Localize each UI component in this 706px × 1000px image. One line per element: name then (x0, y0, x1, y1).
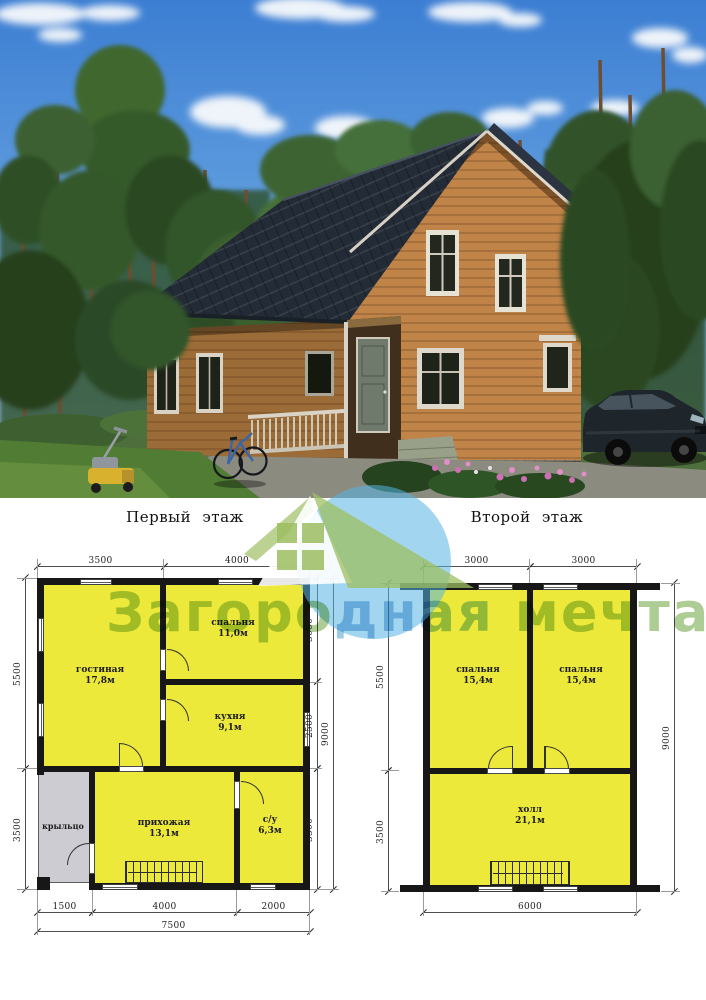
window (218, 579, 253, 585)
dimension: 3000 (317, 578, 318, 682)
window (250, 884, 276, 890)
room-name: гостиная (55, 665, 145, 676)
room-label: кухня 9,1м (185, 712, 275, 735)
window (102, 884, 138, 890)
dimension: 3000 (530, 566, 637, 567)
room-name: крыльцо (39, 821, 87, 831)
floor1-title: Первый этаж (110, 508, 260, 526)
room-label: спальня 11,0м (188, 618, 278, 641)
dimension: 3500 (388, 771, 389, 892)
room-label: холл 21,1м (485, 805, 575, 828)
door-opening (119, 766, 144, 772)
room-name: холл (485, 805, 575, 816)
wall (527, 590, 533, 768)
room-label: с/у 6,3м (246, 815, 294, 838)
window (478, 886, 513, 892)
window (478, 584, 513, 590)
wall (160, 585, 166, 769)
room-name: прихожая (119, 818, 209, 829)
door-opening (89, 843, 95, 874)
room-area: 21,1м (485, 816, 575, 827)
room-area: 9,1м (185, 723, 275, 734)
staircase (125, 861, 203, 883)
dimension: 6000 (423, 912, 637, 913)
room-label: крыльцо (39, 821, 87, 831)
dimension: 2000 (237, 912, 310, 913)
dimension: 5500 (388, 583, 389, 771)
window (80, 579, 112, 585)
dimension: 4000 (92, 912, 237, 913)
dimension: 9000 (333, 578, 334, 890)
door-opening (160, 649, 166, 671)
floor2-title: Второй этаж (452, 508, 602, 526)
dimension: 4000 (164, 566, 310, 567)
door-opening (160, 699, 166, 721)
room-name: кухня (185, 712, 275, 723)
wall (423, 590, 430, 885)
wall (37, 585, 44, 775)
wall (400, 583, 660, 590)
room-area: 15,4м (536, 676, 626, 687)
floor-plan-page: Первый этаж Второй этаж (0, 0, 706, 1000)
staircase (490, 861, 570, 885)
porch-corner-post (37, 877, 50, 890)
room-label: гостиная 17,8м (55, 665, 145, 688)
wall (630, 590, 637, 885)
window (38, 703, 44, 737)
room-label: прихожая 13,1м (119, 818, 209, 841)
window (543, 584, 578, 590)
dimension: 9000 (674, 583, 675, 892)
room-name: спальня (433, 665, 523, 676)
dimension: 5500 (25, 578, 26, 769)
window (38, 618, 44, 652)
dimension: 3500 (317, 769, 318, 890)
dimension: 1500 (37, 912, 92, 913)
room-area: 13,1м (119, 829, 209, 840)
wall (44, 766, 303, 772)
room-area: 11,0м (188, 629, 278, 640)
dimension: 3000 (423, 566, 530, 567)
room-name: спальня (536, 665, 626, 676)
wall (400, 885, 660, 892)
door-opening (234, 781, 240, 809)
exterior-photo (0, 0, 706, 498)
window (543, 886, 578, 892)
wall (37, 578, 310, 585)
room-name: спальня (188, 618, 278, 629)
dimension: 2500 (317, 682, 318, 769)
wall (166, 679, 303, 685)
dimension: 3500 (37, 566, 164, 567)
room-area: 17,8м (55, 676, 145, 687)
room-area: 15,4м (433, 676, 523, 687)
room-name: с/у (246, 815, 294, 826)
room-label: спальня 15,4м (536, 665, 626, 688)
wall (430, 768, 630, 774)
dimension: 7500 (37, 931, 310, 932)
room-label: спальня 15,4м (433, 665, 523, 688)
room-area: 6,3м (246, 826, 294, 837)
dimension: 3500 (25, 769, 26, 890)
